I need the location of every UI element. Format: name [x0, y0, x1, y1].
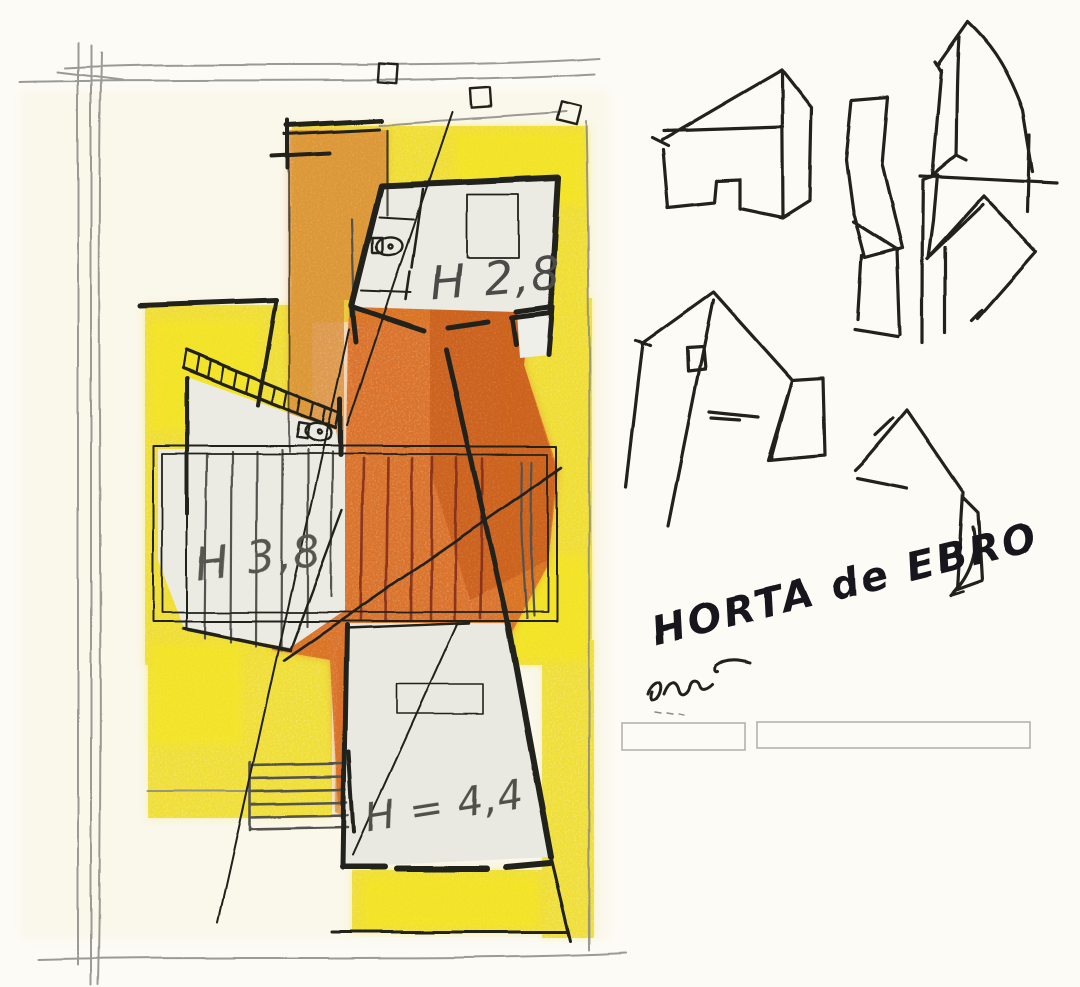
sketch-canvas: H 2,8 H 3,8 H = 4,4 HORTA de EBRO — [0, 0, 1080, 987]
sketch-page: H 2,8 H 3,8 H = 4,4 HORTA de EBRO — [0, 0, 1080, 987]
level-annotation-upper: H 2,8 — [428, 246, 565, 311]
